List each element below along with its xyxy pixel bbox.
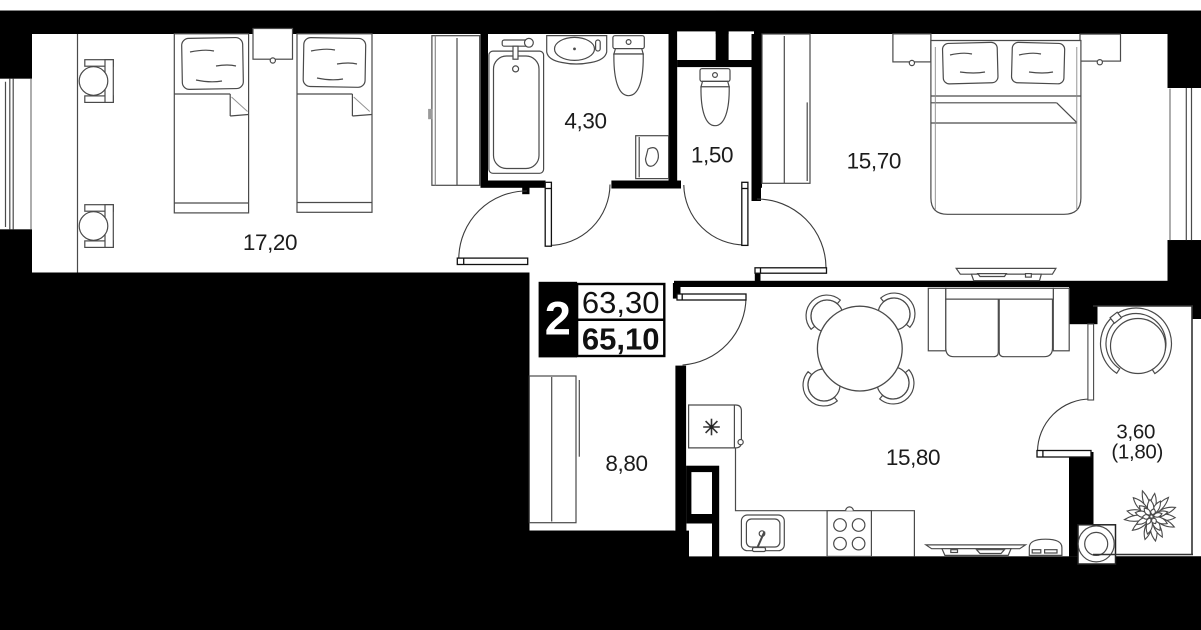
svg-text:(1,80): (1,80)	[1111, 441, 1163, 464]
svg-text:2: 2	[545, 292, 571, 345]
svg-text:63,30: 63,30	[582, 285, 660, 320]
svg-text:65,10: 65,10	[582, 322, 660, 357]
svg-text:15,80: 15,80	[886, 445, 940, 470]
svg-text:8,80: 8,80	[605, 451, 647, 476]
svg-text:1,50: 1,50	[691, 143, 733, 168]
svg-text:15,70: 15,70	[847, 149, 901, 174]
svg-text:17,20: 17,20	[243, 230, 297, 255]
svg-text:4,30: 4,30	[564, 109, 606, 134]
